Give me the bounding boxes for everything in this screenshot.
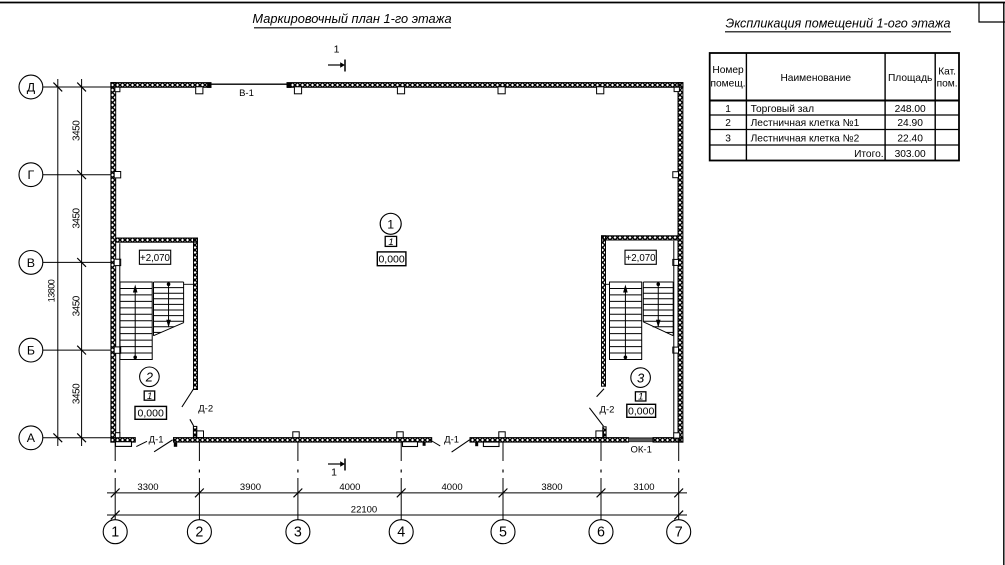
svg-text:3900: 3900 [240, 482, 261, 493]
svg-text:Торговый зал: Торговый зал [751, 104, 815, 115]
svg-text:Экспликация помещений 1-ого эт: Экспликация помещений 1-ого этажа [726, 17, 951, 31]
svg-text:7: 7 [675, 525, 683, 541]
svg-text:Маркировочный план 1-го этажа: Маркировочный план 1-го этажа [252, 11, 451, 26]
svg-text:Г: Г [28, 168, 35, 182]
svg-text:Лестничная клетка №2: Лестничная клетка №2 [751, 134, 860, 145]
svg-text:Д-2: Д-2 [600, 404, 615, 415]
svg-text:2: 2 [725, 118, 731, 129]
svg-text:Д-2: Д-2 [198, 403, 213, 414]
svg-text:Д-1: Д-1 [149, 435, 164, 446]
svg-text:1: 1 [331, 467, 337, 479]
svg-text:3300: 3300 [137, 482, 158, 493]
svg-text:2: 2 [195, 525, 203, 541]
svg-text:0,000: 0,000 [138, 408, 164, 420]
svg-text:Д-1: Д-1 [444, 435, 459, 446]
svg-text:22100: 22100 [351, 504, 377, 515]
svg-text:1: 1 [111, 525, 119, 541]
svg-text:4000: 4000 [339, 482, 360, 493]
svg-text:Наименование: Наименование [780, 73, 851, 84]
svg-text:24.90: 24.90 [897, 118, 923, 129]
svg-text:303.00: 303.00 [895, 149, 926, 160]
svg-text:3450: 3450 [72, 295, 83, 316]
svg-text:1: 1 [147, 391, 152, 402]
svg-text:3800: 3800 [541, 482, 562, 493]
svg-text:ОК-1: ОК-1 [631, 444, 652, 455]
svg-text:В: В [27, 256, 35, 270]
svg-text:2: 2 [145, 370, 154, 385]
svg-text:22.40: 22.40 [897, 134, 923, 145]
svg-text:Лестничная клетка №1: Лестничная клетка №1 [751, 118, 860, 129]
svg-text:пом.: пом. [937, 79, 958, 90]
svg-text:3: 3 [637, 370, 645, 385]
svg-text:3100: 3100 [633, 482, 654, 493]
svg-text:Итого.: Итого. [854, 149, 884, 160]
svg-text:3450: 3450 [72, 120, 83, 141]
svg-text:Б: Б [27, 344, 35, 358]
svg-text:1: 1 [638, 392, 643, 403]
svg-text:Д: Д [27, 80, 36, 94]
svg-text:помещ.: помещ. [711, 79, 746, 90]
svg-text:3450: 3450 [72, 207, 83, 228]
svg-text:+2,070: +2,070 [140, 253, 171, 264]
svg-text:1: 1 [387, 217, 394, 231]
svg-text:6: 6 [597, 525, 605, 541]
svg-text:3: 3 [294, 525, 302, 541]
svg-text:4000: 4000 [442, 482, 463, 493]
svg-text:0,000: 0,000 [378, 254, 404, 266]
svg-text:13800: 13800 [47, 279, 57, 302]
svg-text:Кат.: Кат. [938, 67, 956, 78]
svg-text:1: 1 [334, 44, 340, 56]
svg-text:А: А [27, 431, 36, 445]
svg-text:Площадь: Площадь [888, 73, 932, 84]
svg-text:В-1: В-1 [239, 88, 254, 99]
svg-text:5: 5 [499, 525, 507, 541]
svg-text:3: 3 [725, 134, 731, 145]
svg-text:Номер: Номер [712, 65, 744, 76]
svg-text:248.00: 248.00 [895, 104, 926, 115]
svg-text:4: 4 [397, 525, 405, 541]
svg-text:+2,070: +2,070 [626, 253, 657, 264]
svg-text:1: 1 [725, 104, 731, 115]
svg-text:0,000: 0,000 [628, 406, 654, 418]
svg-text:3450: 3450 [72, 383, 83, 404]
svg-text:1: 1 [388, 237, 393, 248]
